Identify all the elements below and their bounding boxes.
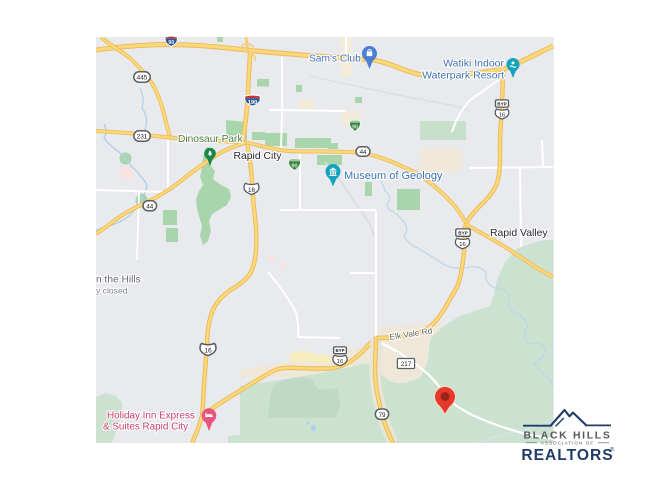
svg-text:Sam's Club: Sam's Club [309,54,361,65]
svg-text:BYP: BYP [458,231,467,236]
svg-text:445: 445 [137,75,148,82]
svg-text:Watiki Indoor: Watiki Indoor [443,58,504,70]
svg-text:n the Hills: n the Hills [96,275,141,286]
svg-text:& Suites Rapid City: & Suites Rapid City [103,422,188,433]
svg-text:44: 44 [360,149,367,156]
svg-text:Waterpark Resort: Waterpark Resort [422,70,504,82]
svg-text:190: 190 [248,100,258,106]
svg-text:16: 16 [248,187,255,194]
svg-text:Dinosaur Park: Dinosaur Park [178,134,243,145]
svg-text:Holiday Inn Express: Holiday Inn Express [107,411,195,422]
svg-text:44: 44 [146,203,153,210]
svg-text:90: 90 [168,40,174,46]
svg-text:16: 16 [459,242,465,248]
svg-text:ASSOCIATION OF: ASSOCIATION OF [541,441,594,446]
svg-text:BYP: BYP [497,101,506,106]
svg-text:79: 79 [379,412,386,419]
svg-text:y closed: y closed [96,286,128,296]
svg-text:Museum of Geology: Museum of Geology [344,170,443,182]
svg-text:REALTORS: REALTORS [521,447,613,464]
svg-text:Rapid Valley: Rapid Valley [490,228,548,239]
svg-text:16: 16 [499,113,505,119]
svg-text:16: 16 [337,359,343,365]
svg-text:231: 231 [137,134,148,141]
svg-text:90: 90 [352,125,358,131]
svg-text:®: ® [610,446,614,453]
svg-text:217: 217 [401,361,412,368]
svg-text:BYP: BYP [335,348,344,353]
svg-text:Rapid City: Rapid City [234,151,283,162]
svg-text:16: 16 [204,348,212,355]
svg-text:90: 90 [291,164,297,170]
